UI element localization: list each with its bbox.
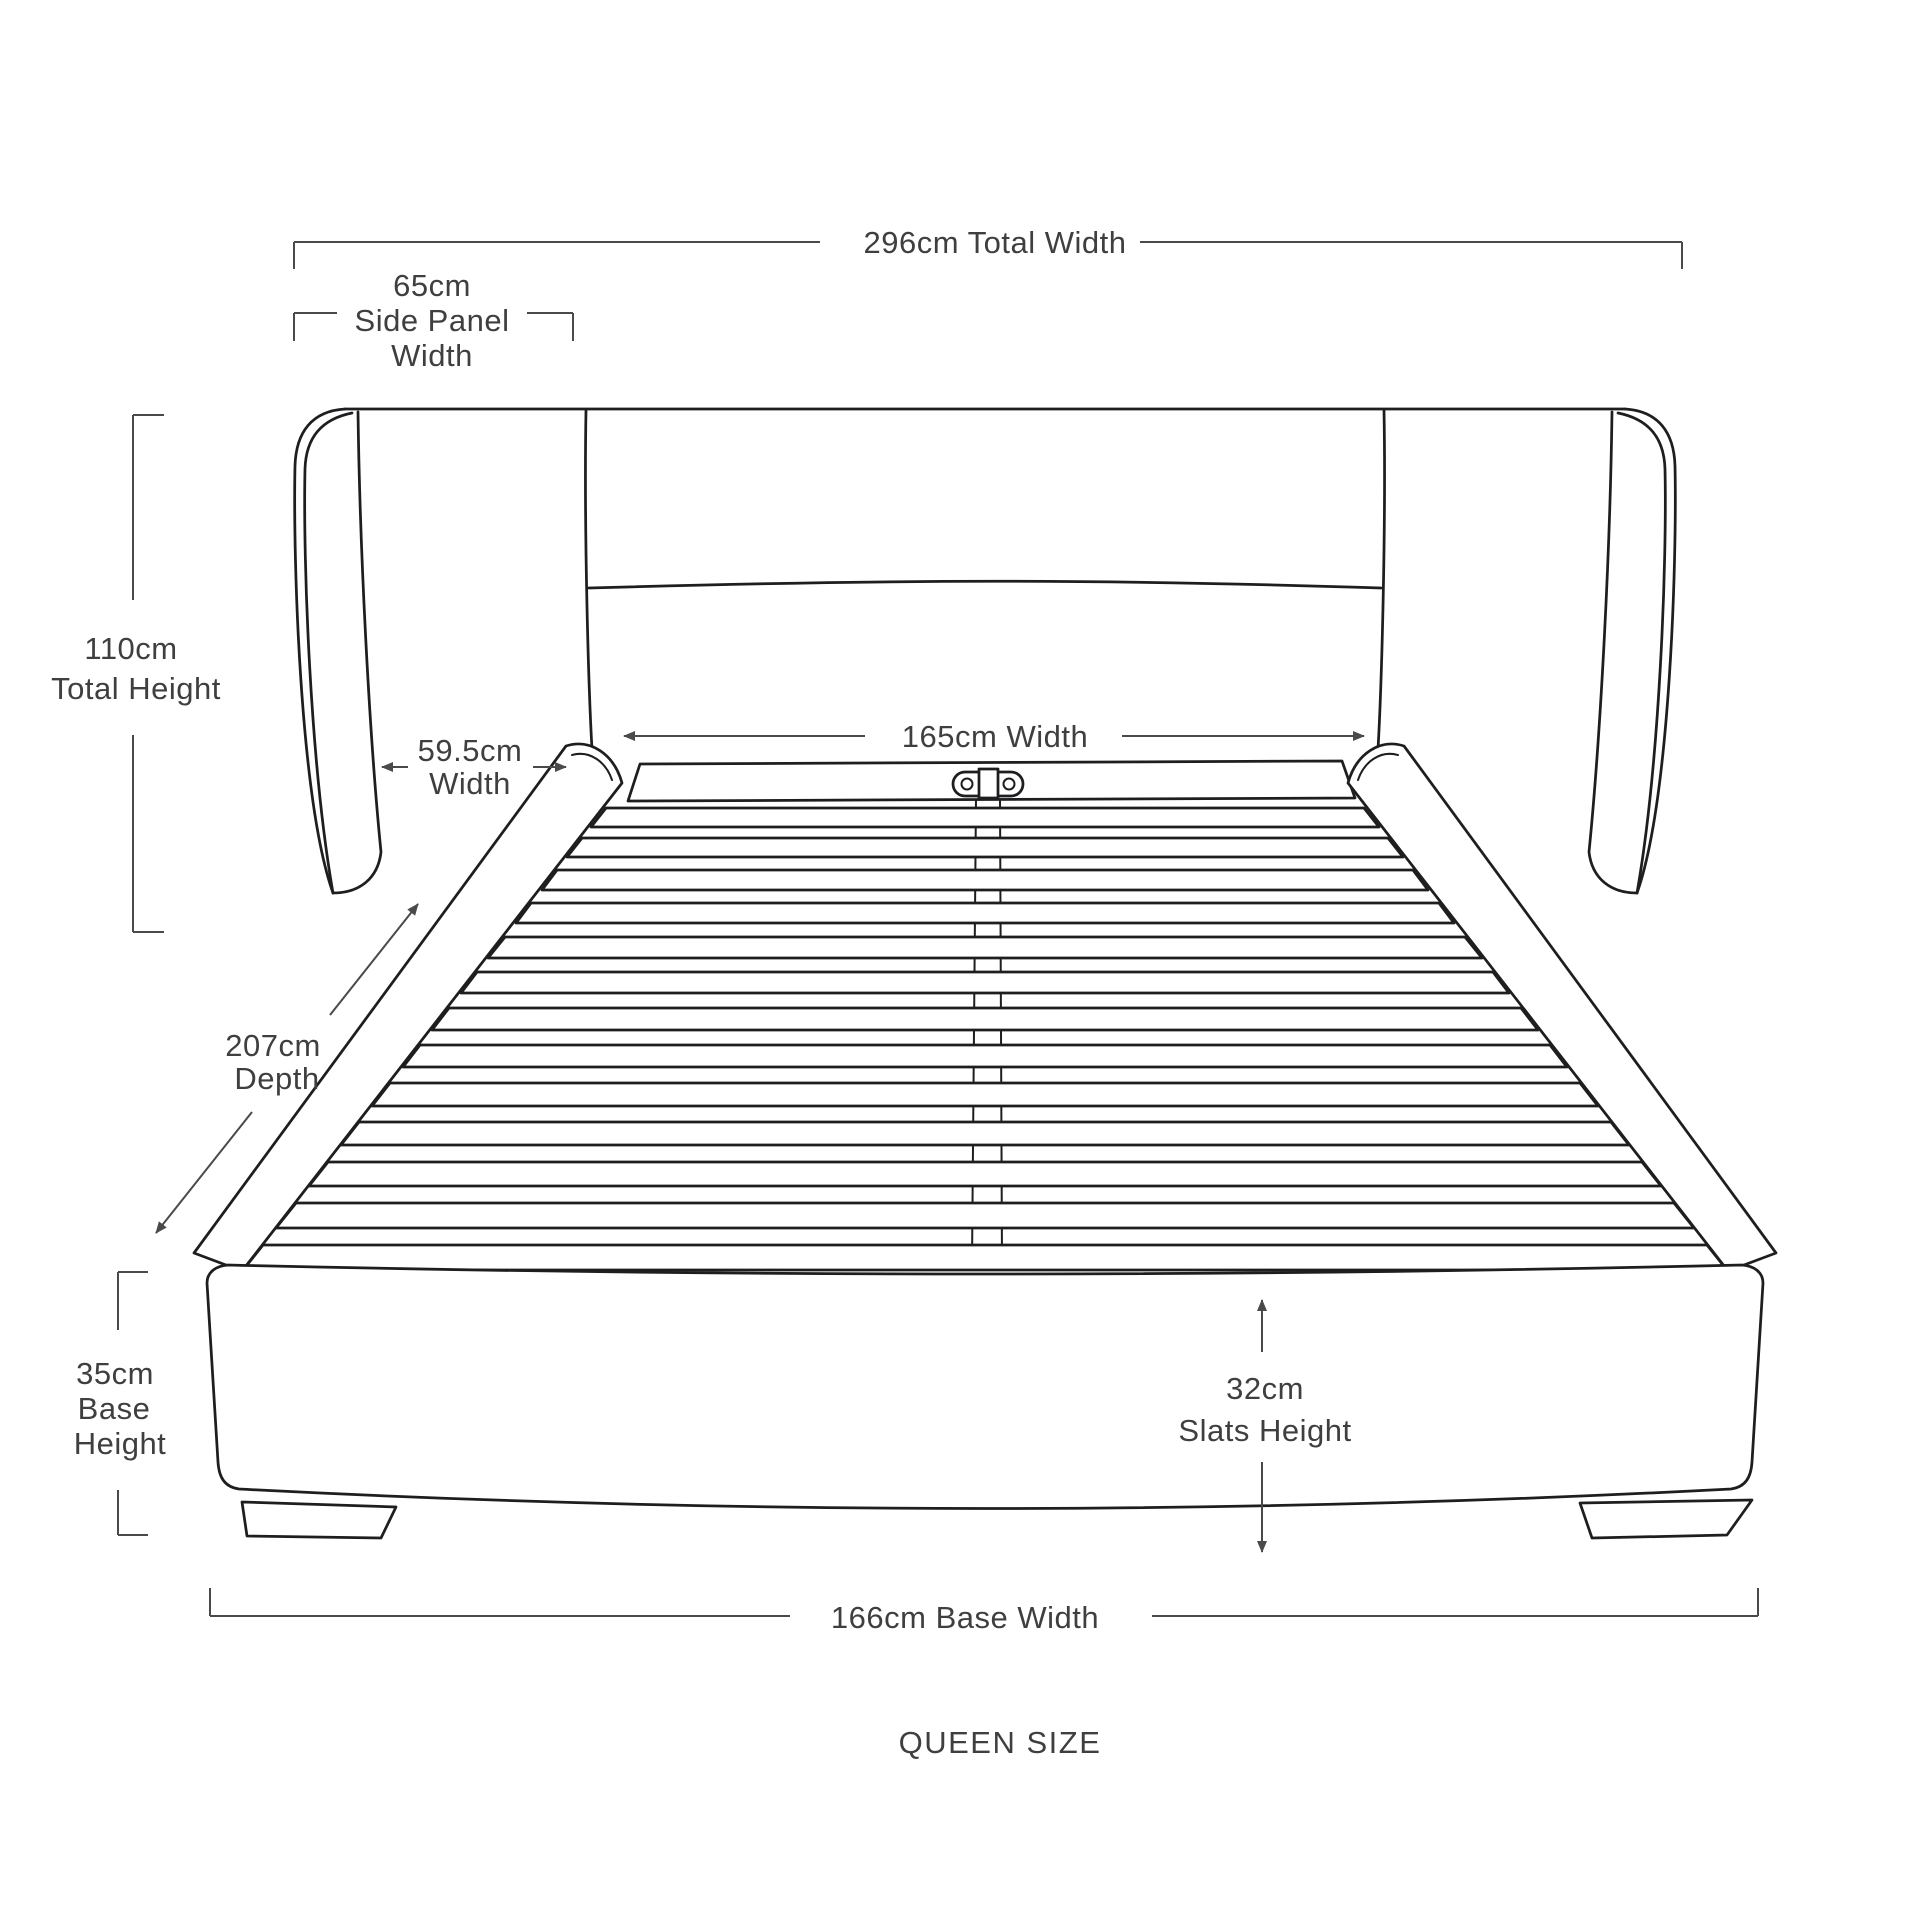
dim-total-height: 110cm Total Height <box>51 415 221 932</box>
label-total-width: 296cm Total Width <box>864 225 1127 260</box>
bed-drawing <box>194 409 1776 1538</box>
slat <box>591 808 1379 827</box>
diagram-svg: 296cm Total Width 65cm Side Panel Width … <box>0 0 1920 1920</box>
latch-detail <box>953 769 1023 798</box>
label-total-height: Total Height <box>51 671 221 706</box>
right-foot <box>1580 1500 1752 1538</box>
slat <box>341 1122 1629 1145</box>
label-depth-value: 207cm <box>225 1028 321 1063</box>
slats <box>243 808 1727 1270</box>
dim-base-width: 166cm Base Width <box>210 1588 1758 1635</box>
size-title: QUEEN SIZE <box>899 1725 1102 1760</box>
label-panel-width: Width <box>429 766 511 801</box>
left-foot <box>242 1502 396 1538</box>
slat <box>516 903 1454 923</box>
dim-side-panel-width: 65cm Side Panel Width <box>294 268 573 373</box>
base-front-face <box>207 1265 1763 1509</box>
dim-headboard-width: 165cm Width <box>624 719 1364 754</box>
label-base-width: 166cm Base Width <box>831 1600 1099 1635</box>
label-side-panel-value: 65cm <box>393 268 471 303</box>
label-total-height-value: 110cm <box>84 631 177 666</box>
label-slats-height: Slats Height <box>1178 1413 1351 1448</box>
slat <box>567 838 1403 857</box>
label-base-height-value: 35cm <box>76 1356 154 1391</box>
dim-base-height: 35cm Base Height <box>74 1272 167 1535</box>
slat <box>243 1245 1727 1270</box>
headboard-seam <box>589 581 1381 588</box>
bed-dimension-diagram: 296cm Total Width 65cm Side Panel Width … <box>0 0 1920 1920</box>
label-base-height-line2: Base <box>78 1391 151 1426</box>
label-base-height-line3: Height <box>74 1426 167 1461</box>
label-side-panel-line3: Width <box>391 338 473 373</box>
slat <box>461 972 1509 993</box>
slat <box>309 1162 1661 1186</box>
slat <box>488 937 1482 958</box>
label-panel-width-value: 59.5cm <box>418 733 523 768</box>
slat <box>432 1008 1538 1030</box>
slat <box>276 1203 1694 1228</box>
label-slats-height-value: 32cm <box>1226 1371 1304 1406</box>
label-side-panel-line2: Side Panel <box>355 303 510 338</box>
dim-total-width: 296cm Total Width <box>294 225 1682 269</box>
slat <box>403 1045 1567 1067</box>
label-headboard-width: 165cm Width <box>902 719 1088 754</box>
label-depth: Depth <box>234 1061 319 1096</box>
headboard-centre-panel <box>585 410 1384 766</box>
slat <box>372 1083 1598 1106</box>
slat <box>542 870 1428 890</box>
